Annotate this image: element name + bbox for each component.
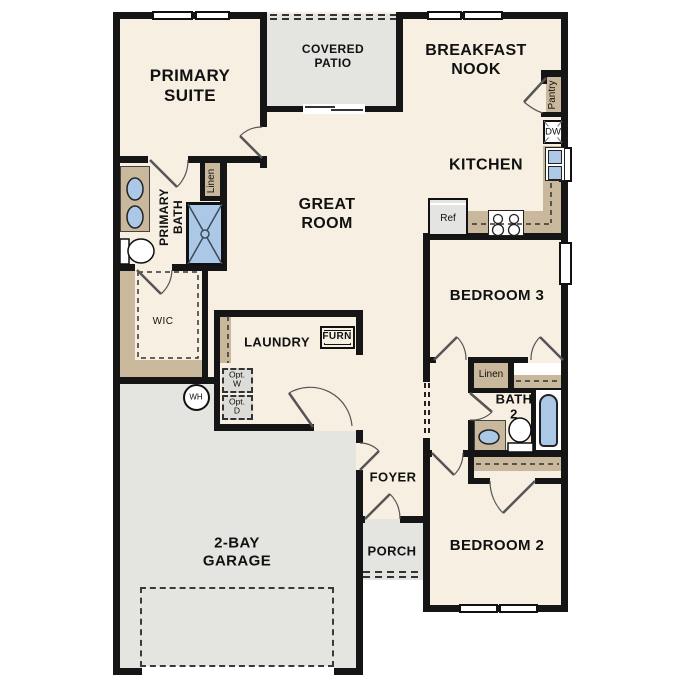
fixture-label-refrigerator: Ref — [440, 213, 456, 225]
wall-segment — [214, 310, 362, 317]
fixture-label-dishwasher: DW — [545, 126, 561, 137]
stove-icon — [488, 210, 524, 236]
wall-segment — [541, 112, 568, 117]
wic-shelf-bottom — [120, 360, 202, 378]
kitchen-sink-basin — [548, 166, 562, 180]
bedroom3-closet-space — [514, 363, 561, 375]
wall-segment — [260, 112, 267, 127]
window — [195, 11, 230, 20]
wall-segment — [428, 605, 459, 612]
outside-area — [363, 580, 423, 612]
closet-label-wic: WIC — [153, 316, 174, 328]
window — [427, 11, 462, 20]
wall-segment — [356, 470, 363, 675]
wall-segment — [202, 271, 208, 381]
room-label-great-room: GREAT ROOM — [299, 196, 356, 234]
wall-segment — [400, 516, 428, 523]
wall-segment — [423, 357, 436, 363]
wall-segment — [356, 516, 365, 523]
fixture-label-furnace: FURN — [322, 331, 351, 343]
room-label-covered-patio: COVERED PATIO — [302, 42, 364, 70]
wall-segment — [468, 357, 528, 363]
window — [559, 242, 572, 285]
bedroom3-closet-shelf — [514, 375, 561, 388]
wall-segment — [356, 310, 363, 355]
room-label-foyer: FOYER — [370, 469, 417, 484]
wall-segment — [200, 196, 227, 201]
sliding-door-panel — [331, 109, 363, 111]
wall-segment — [561, 285, 568, 612]
wall-segment — [428, 450, 432, 457]
room-label-garage: 2-BAY GARAGE — [203, 534, 271, 569]
closet-label-pantry: Pantry — [547, 81, 559, 110]
wall-segment — [113, 156, 148, 163]
shower-icon — [186, 202, 224, 266]
wall-segment — [200, 163, 205, 200]
room-label-primary-bath: PRIMARY BATH — [157, 188, 185, 246]
bedroom2-closet-shelf — [474, 457, 561, 471]
bathtub-icon — [539, 394, 558, 447]
refrigerator-divider — [430, 203, 466, 205]
wall-segment — [113, 668, 142, 675]
wall-segment — [503, 12, 568, 19]
wall-segment — [537, 605, 568, 612]
room-label-porch: PORCH — [368, 543, 417, 558]
room-label-breakfast-nook: BREAKFAST NOOK — [425, 42, 526, 80]
room-label-bedroom2: BEDROOM 2 — [450, 537, 544, 555]
fixture-label-optional-dryer: Opt. D — [229, 398, 245, 417]
wall-segment — [356, 430, 363, 443]
floor-plan: PRIMARY SUITE COVERED PATIO BREAKFAST NO… — [0, 0, 687, 687]
wall-segment — [113, 264, 135, 271]
window — [463, 11, 503, 20]
wall-segment — [535, 478, 568, 484]
wall-segment — [468, 478, 490, 484]
fixture-label-water-heater: WH — [189, 392, 202, 401]
room-label-laundry: LAUNDRY — [244, 334, 310, 349]
room-label-bedroom3: BEDROOM 3 — [450, 287, 544, 305]
window — [459, 604, 498, 613]
window — [499, 604, 538, 613]
sliding-door-panel — [305, 106, 335, 108]
garage-door-opening — [142, 666, 334, 677]
laundry-shelf — [220, 315, 231, 363]
wall-segment — [113, 12, 120, 675]
wall-segment — [463, 450, 568, 457]
closet-label-linen-hall: Linen — [479, 369, 503, 381]
window — [152, 11, 193, 20]
room-label-kitchen: KITCHEN — [449, 157, 523, 176]
wall-segment — [260, 12, 267, 112]
fixture-label-optional-washer: Opt. W — [229, 371, 245, 390]
wall-segment — [113, 377, 214, 384]
wall-segment — [423, 438, 430, 612]
wall-segment — [214, 424, 314, 431]
closet-label-linen-primary: Linen — [206, 169, 218, 193]
wall-segment — [188, 156, 267, 163]
room-label-primary-suite: PRIMARY SUITE — [150, 66, 231, 106]
wall-segment — [214, 310, 220, 431]
wall-segment — [562, 357, 568, 363]
bath2-vanity — [474, 420, 506, 453]
kitchen-sink-basin — [548, 150, 562, 164]
wall-segment — [541, 70, 547, 84]
primary-vanity — [120, 166, 150, 232]
wall-segment — [363, 106, 403, 112]
room-label-bath2: BATH 2 — [496, 392, 533, 423]
wall-segment — [396, 12, 403, 112]
garage-door-dashed — [140, 587, 334, 667]
